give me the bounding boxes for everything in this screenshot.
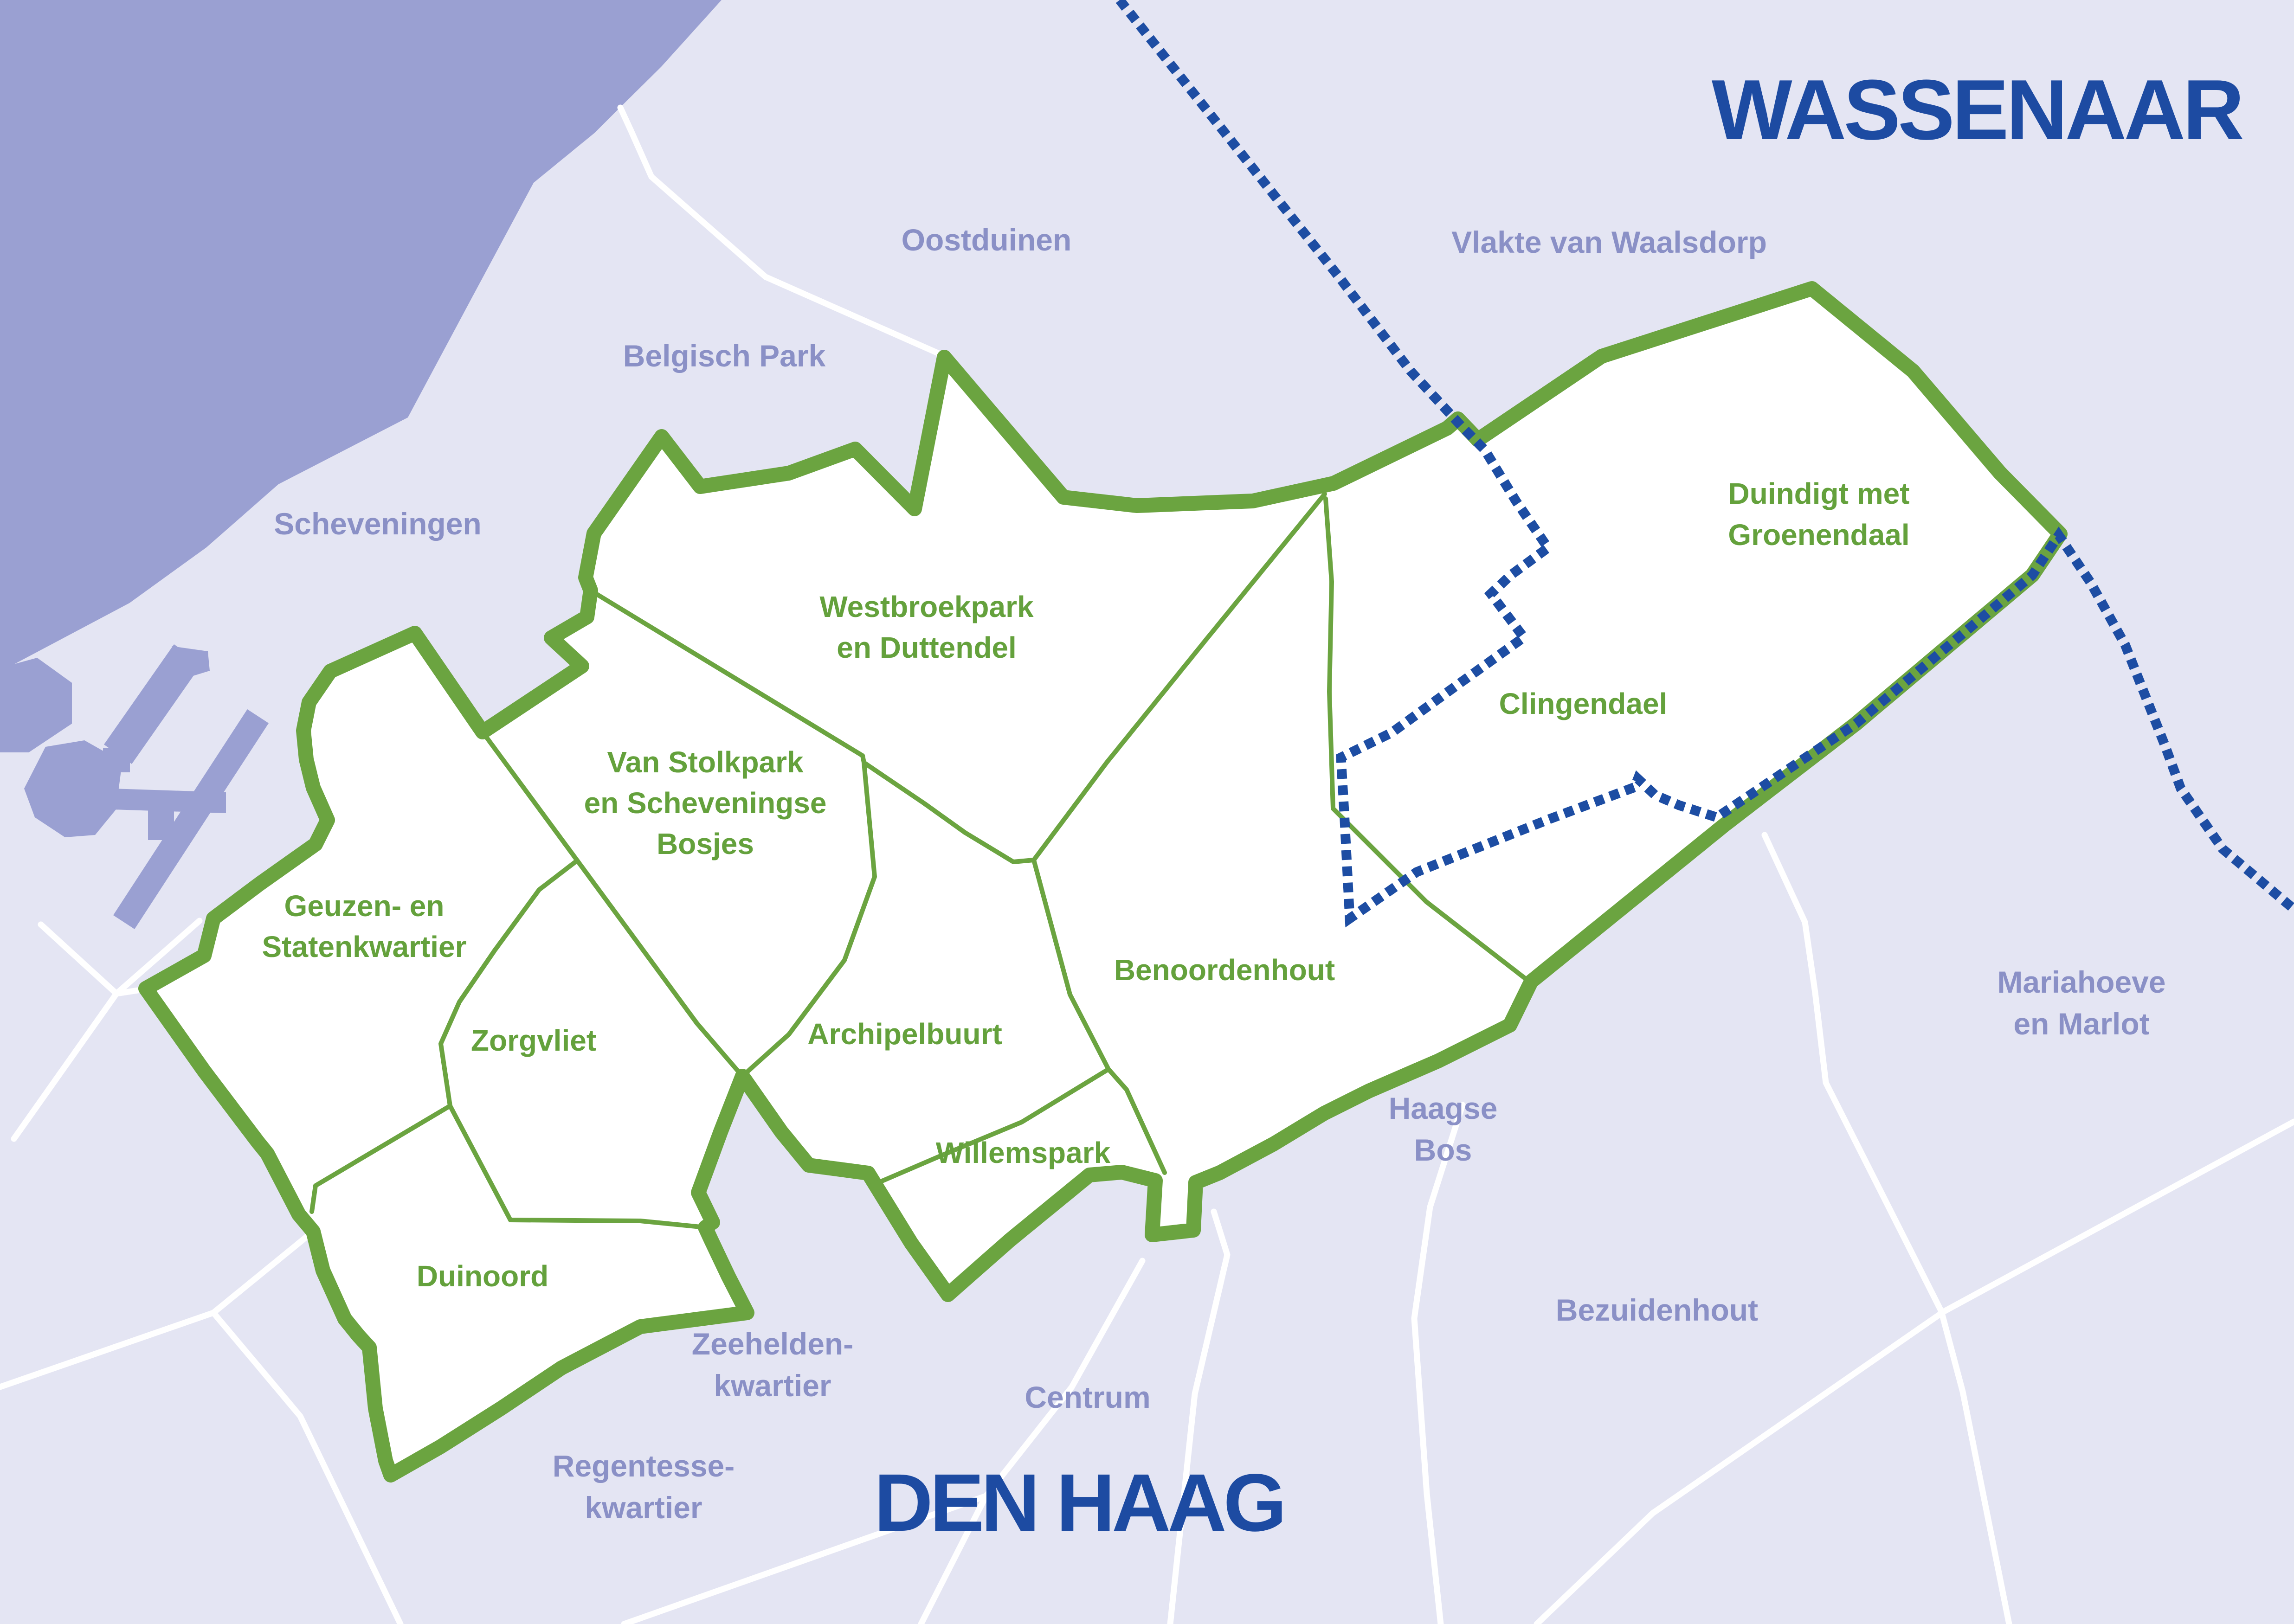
svg-text:Zorgvliet: Zorgvliet xyxy=(471,1024,596,1057)
svg-text:kwartier: kwartier xyxy=(585,1490,702,1525)
svg-text:en Scheveningse: en Scheveningse xyxy=(584,786,827,820)
svg-text:WASSENAAR: WASSENAAR xyxy=(1712,62,2243,157)
svg-text:Scheveningen: Scheveningen xyxy=(274,507,481,541)
svg-text:Bosjes: Bosjes xyxy=(657,827,754,860)
svg-text:Groenendaal: Groenendaal xyxy=(1728,518,1909,552)
svg-text:Regentesse-: Regentesse- xyxy=(553,1449,735,1483)
svg-text:Clingendael: Clingendael xyxy=(1499,687,1668,720)
svg-text:Duinoord: Duinoord xyxy=(417,1259,548,1293)
svg-text:en Duttendel: en Duttendel xyxy=(837,631,1017,664)
svg-text:Centrum: Centrum xyxy=(1025,1380,1150,1414)
svg-text:Duindigt met: Duindigt met xyxy=(1728,477,1909,510)
svg-text:Zeehelden-: Zeehelden- xyxy=(692,1327,853,1361)
svg-text:Benoordenhout: Benoordenhout xyxy=(1114,953,1335,987)
svg-text:DEN HAAG: DEN HAAG xyxy=(874,1457,1284,1548)
svg-text:Bos: Bos xyxy=(1414,1133,1472,1167)
svg-text:kwartier: kwartier xyxy=(714,1368,831,1403)
svg-text:Vlakte van Waalsdorp: Vlakte van Waalsdorp xyxy=(1451,225,1767,259)
svg-text:Van Stolkpark: Van Stolkpark xyxy=(607,745,804,779)
svg-text:Haagse: Haagse xyxy=(1389,1091,1498,1125)
svg-text:Mariahoeve: Mariahoeve xyxy=(1997,965,2165,999)
svg-text:Westbroekpark: Westbroekpark xyxy=(819,590,1034,623)
svg-text:Belgisch Park: Belgisch Park xyxy=(623,339,826,373)
svg-text:Statenkwartier: Statenkwartier xyxy=(262,930,466,963)
svg-text:Geuzen- en: Geuzen- en xyxy=(284,889,445,923)
svg-text:Oostduinen: Oostduinen xyxy=(902,223,1072,257)
svg-text:Archipelbuurt: Archipelbuurt xyxy=(807,1017,1002,1051)
svg-text:Bezuidenhout: Bezuidenhout xyxy=(1556,1293,1758,1327)
svg-text:Willemspark: Willemspark xyxy=(936,1136,1111,1169)
svg-text:en Marlot: en Marlot xyxy=(2013,1007,2149,1041)
